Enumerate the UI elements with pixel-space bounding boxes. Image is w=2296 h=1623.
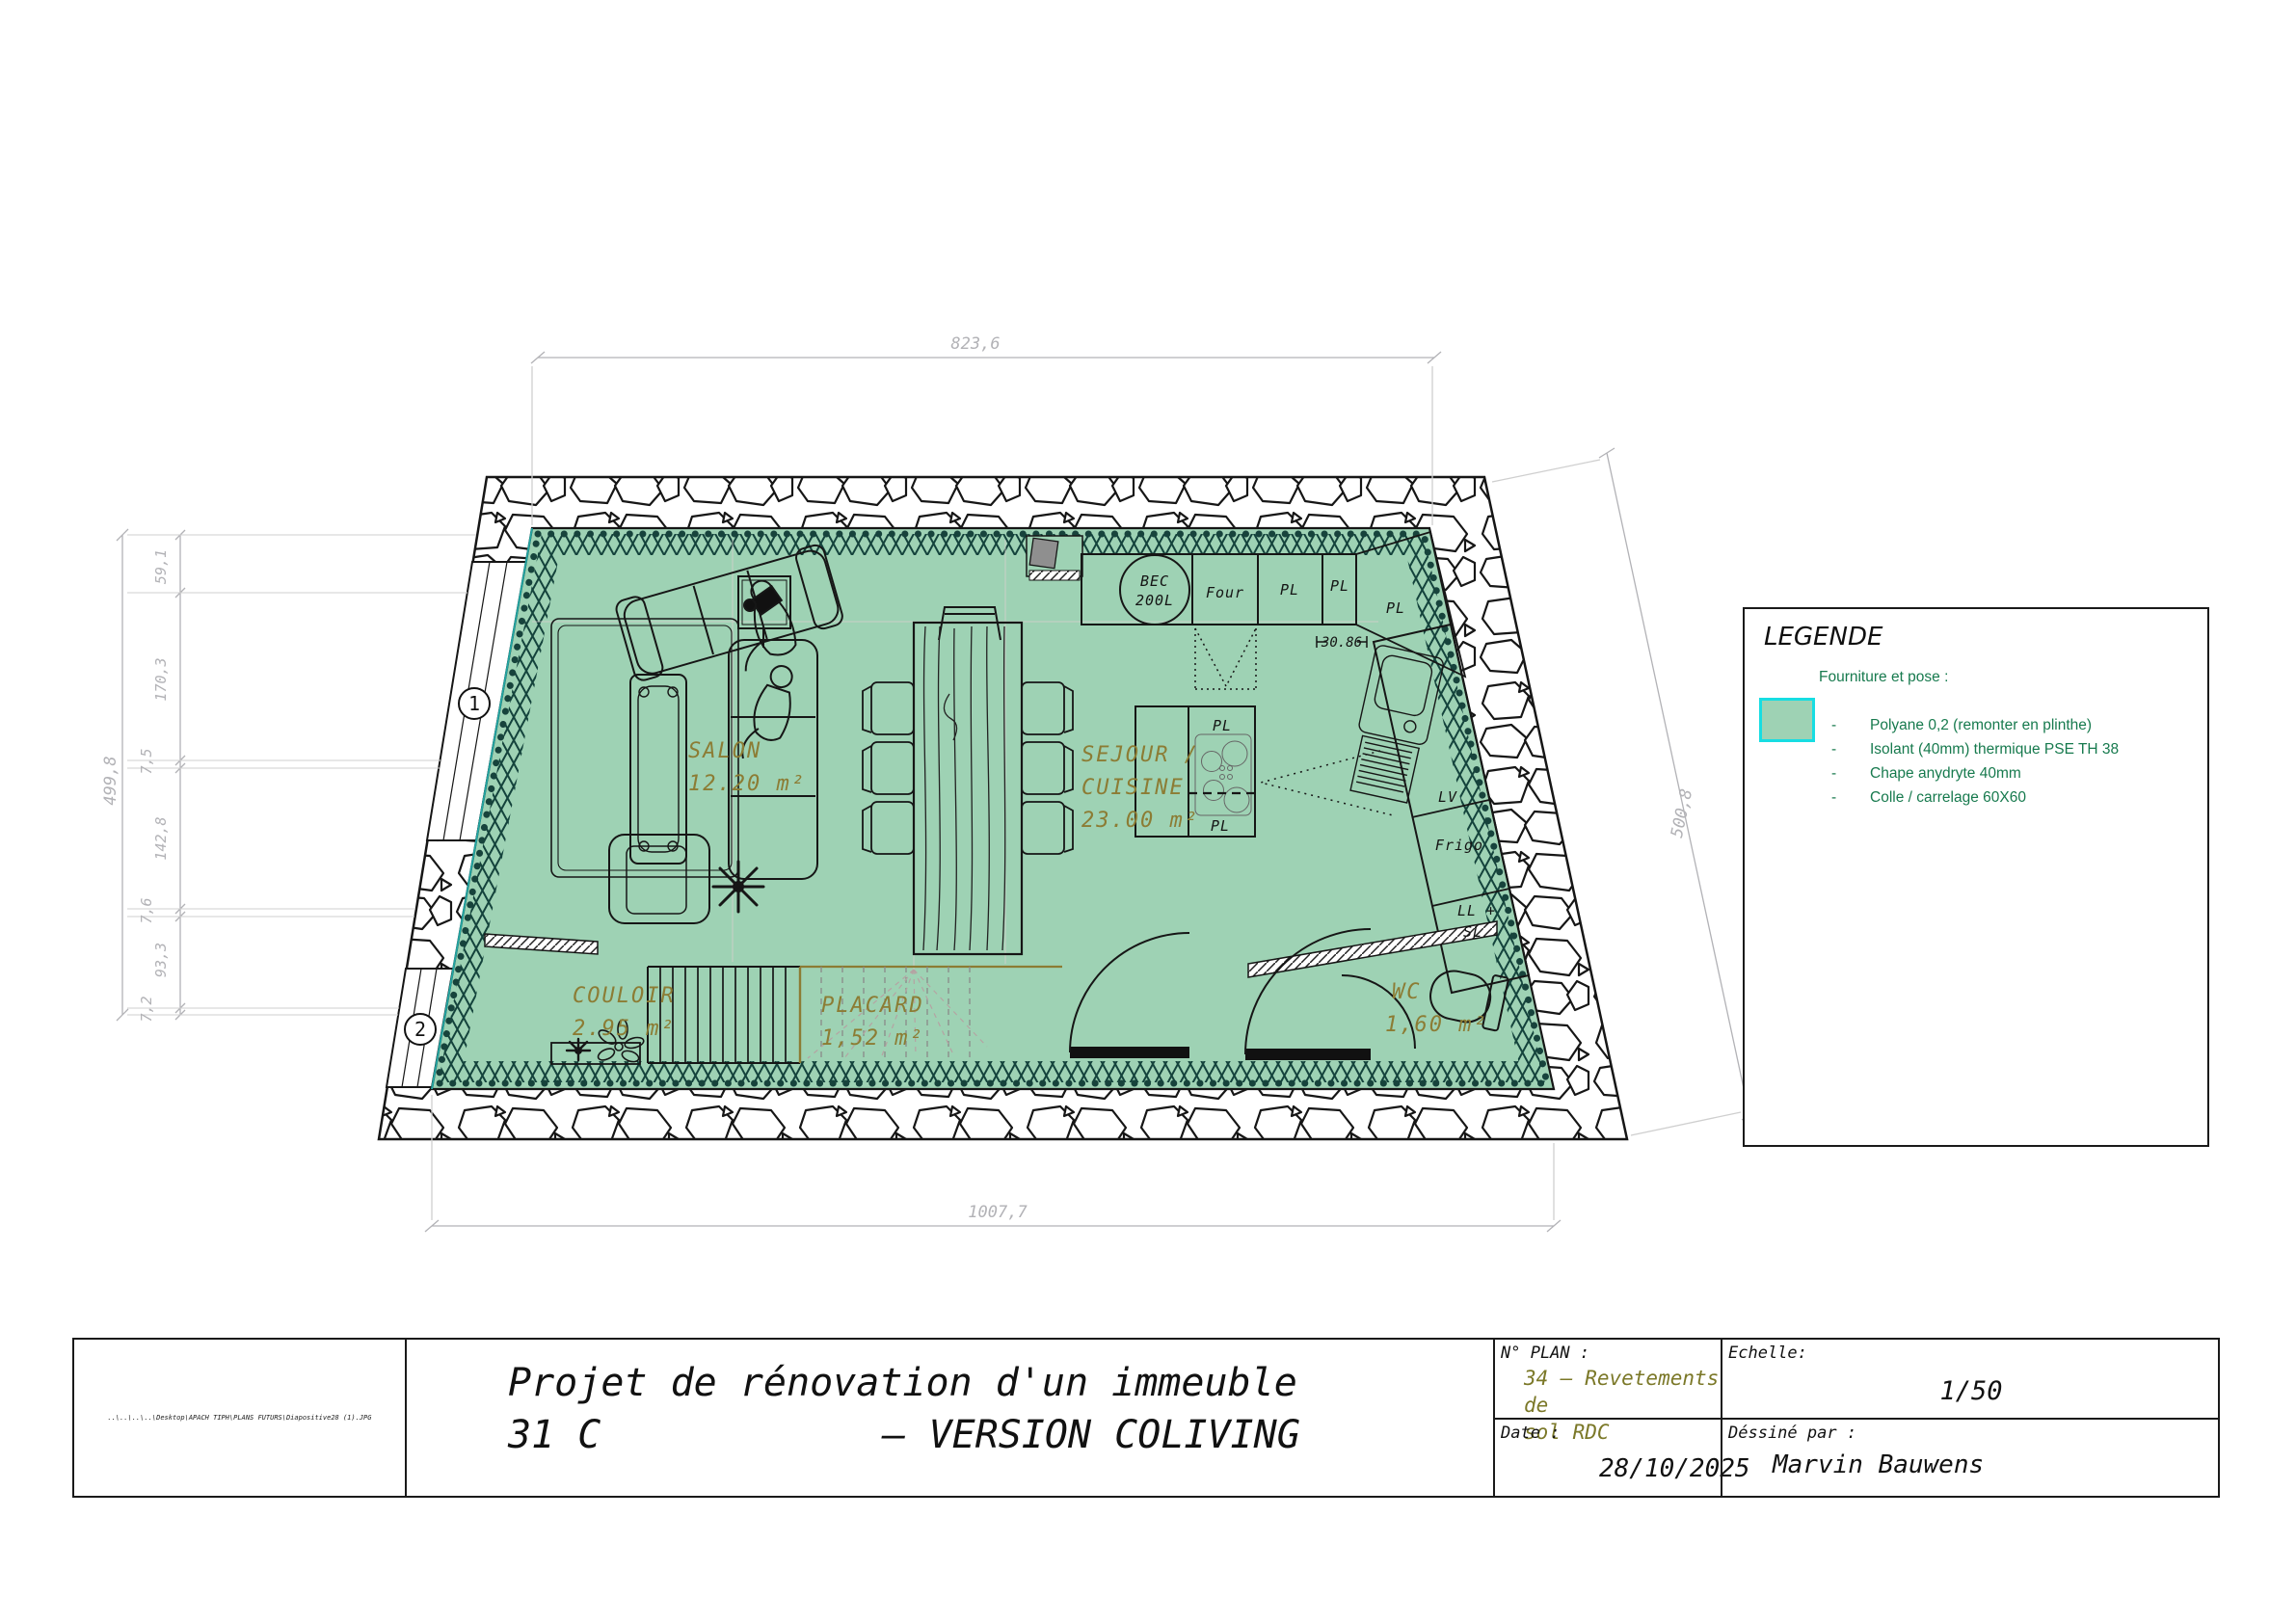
dim-left-7: 7,2 xyxy=(138,996,155,1022)
scale-label: Echelle: xyxy=(1728,1344,2220,1363)
author-cell: Déssiné par : Marvin Bauwens xyxy=(1721,1420,2220,1496)
door-leaf xyxy=(1070,1047,1189,1058)
date-cell: Date : 28/10/2025 xyxy=(1493,1420,1721,1496)
legend-items: - Polyane 0,2 (remonter en plinthe) - Is… xyxy=(1831,717,2119,813)
dim-left-3: 7,5 xyxy=(138,748,155,774)
ll-label-1: LL + xyxy=(1457,902,1496,919)
date-value: 28/10/2025 xyxy=(1599,1454,1721,1483)
frigo-label: Frigo xyxy=(1435,837,1483,854)
legend-item: - Isolant (40mm) thermique PSE TH 38 xyxy=(1831,741,2119,758)
scale-cell: Echelle: 1/50 xyxy=(1721,1340,2220,1420)
plan-number-cell: N° PLAN : 34 – Revetements de sol RDC xyxy=(1493,1340,1721,1420)
couloir-label: COULOIR xyxy=(573,984,676,1008)
bullet: - xyxy=(1831,741,1870,758)
dim-top: 823,6 xyxy=(950,334,1000,354)
pl-label: PL xyxy=(1330,577,1349,595)
legend-swatch xyxy=(1759,698,1815,742)
lv-label: LV xyxy=(1438,788,1457,806)
pl-label: PL xyxy=(1280,581,1299,599)
pl-label: PL xyxy=(1386,599,1405,617)
sejour-label-1: SEJOUR / xyxy=(1081,743,1199,767)
wc-label: WC xyxy=(1392,980,1422,1004)
legend-item: - Colle / carrelage 60X60 xyxy=(1831,789,2119,807)
title-block: ..\..\..\..\Desktop\APACH TIPH\PLANS FUT… xyxy=(72,1338,2220,1498)
project-title-cell: Projet de rénovation d'un immeuble 31 C–… xyxy=(407,1340,1493,1496)
legend-item: - Polyane 0,2 (remonter en plinthe) xyxy=(1831,717,2119,734)
bullet: - xyxy=(1831,717,1870,734)
legend-title: LEGENDE xyxy=(1764,623,1882,652)
bec-label-1: BEC xyxy=(1140,572,1169,590)
legend-subtitle: Fourniture et pose : xyxy=(1819,669,1948,686)
legend-item-text: Chape anydryte 40mm xyxy=(1870,765,2021,783)
pl-label: PL xyxy=(1213,717,1232,734)
legend-box: LEGENDE Fourniture et pose : - Polyane 0… xyxy=(1743,607,2209,1147)
door-leaf xyxy=(1245,1049,1371,1060)
plant xyxy=(713,862,763,912)
sejour-label-2: CUISINE xyxy=(1081,776,1185,800)
dim-left-total: 499,8 xyxy=(101,756,120,805)
placard-area: 1,52 m² xyxy=(821,1026,924,1051)
couloir-area: 2.95 m² xyxy=(573,1017,676,1041)
version-label: – VERSION COLIVING xyxy=(882,1413,1299,1457)
marker-2: 2 xyxy=(414,1018,426,1041)
placard-label: PLACARD xyxy=(821,994,924,1018)
ll-label-2: SL xyxy=(1463,923,1482,941)
legend-item: - Chape anydryte 40mm xyxy=(1831,765,2119,783)
pl-label: PL xyxy=(1211,817,1230,835)
plan-number-label: N° PLAN : xyxy=(1501,1344,1721,1363)
svg-text:30.86: 30.86 xyxy=(1321,635,1362,651)
page: SALON 12.20 m² SEJOUR / CUISINE 23.00 m²… xyxy=(0,0,2296,1623)
dim-left-1: 59,1 xyxy=(152,549,170,584)
dim-left-4: 142,8 xyxy=(152,816,170,860)
scale-value: 1/50 xyxy=(1722,1376,2220,1406)
sejour-area: 23.00 m² xyxy=(1081,809,1199,833)
counter-dimension: 30.86 xyxy=(1317,635,1367,651)
bullet: - xyxy=(1831,789,1870,807)
building-number: 31 C xyxy=(508,1413,601,1457)
salon-area: 12.20 m² xyxy=(688,772,806,796)
bullet: - xyxy=(1831,765,1870,783)
project-title-line2: 31 C– VERSION COLIVING xyxy=(508,1413,1300,1457)
dim-left-2: 170,3 xyxy=(152,657,170,701)
date-label: Date : xyxy=(1501,1423,1721,1443)
project-title-line1: Projet de rénovation d'un immeuble xyxy=(508,1361,1297,1405)
marker-1: 1 xyxy=(468,692,480,715)
file-path-cell: ..\..\..\..\Desktop\APACH TIPH\PLANS FUT… xyxy=(74,1340,407,1496)
dim-bottom: 1007,7 xyxy=(968,1203,1028,1222)
dim-right: 500,8 xyxy=(1668,787,1696,839)
dim-left-5: 7,6 xyxy=(138,897,155,923)
dim-left-6: 93,3 xyxy=(152,943,170,977)
entry-niche xyxy=(1027,536,1082,580)
plan-number-value-line1: 34 – Revetements de xyxy=(1524,1365,1721,1419)
legend-item-text: Isolant (40mm) thermique PSE TH 38 xyxy=(1870,741,2119,758)
salon-label: SALON xyxy=(688,739,761,763)
wc-area: 1,60 m² xyxy=(1385,1013,1488,1037)
legend-item-text: Colle / carrelage 60X60 xyxy=(1870,789,2026,807)
bec-label-2: 200L xyxy=(1135,592,1174,609)
four-label: Four xyxy=(1206,584,1244,601)
file-path: ..\..\..\..\Desktop\APACH TIPH\PLANS FUT… xyxy=(108,1414,372,1422)
author-value: Marvin Bauwens xyxy=(1773,1450,2220,1479)
author-label: Déssiné par : xyxy=(1728,1423,2220,1443)
legend-item-text: Polyane 0,2 (remonter en plinthe) xyxy=(1870,717,2092,734)
